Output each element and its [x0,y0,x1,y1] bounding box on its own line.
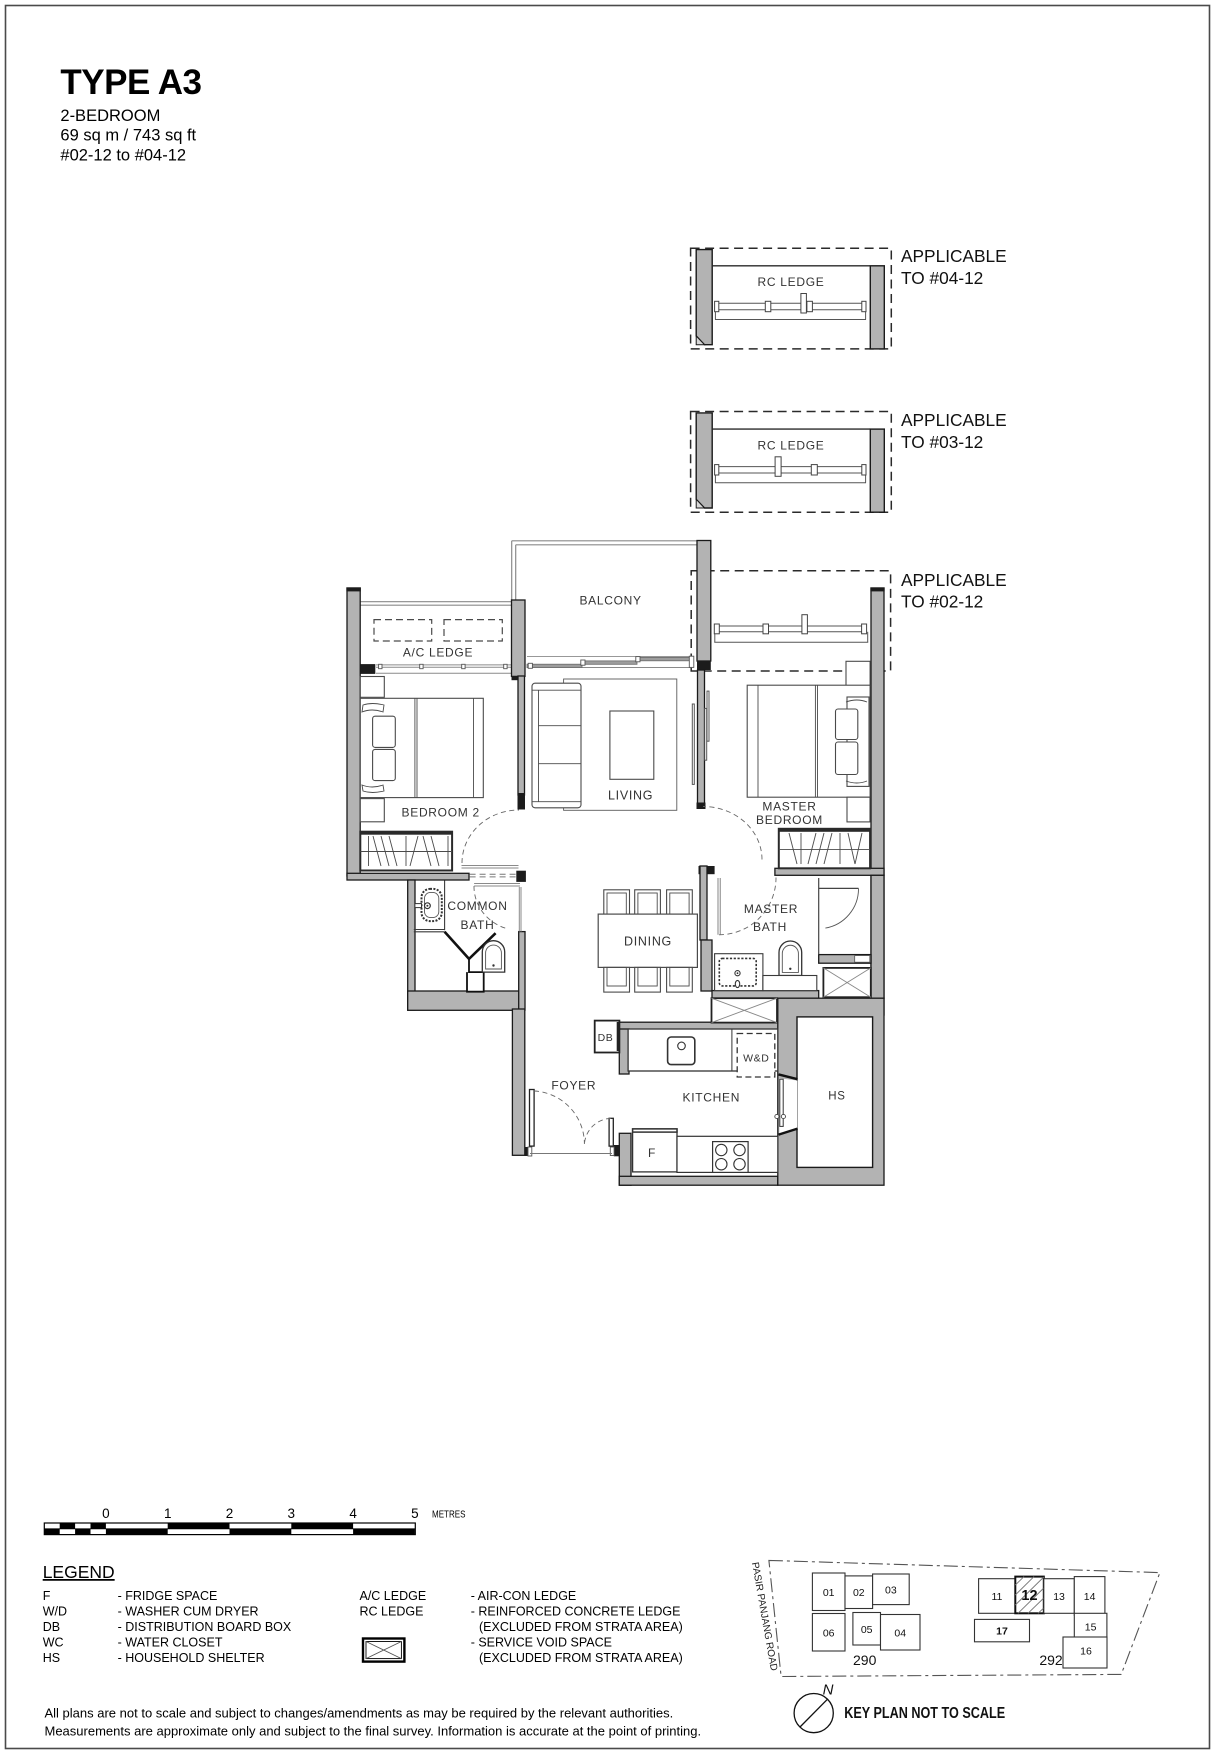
svg-text:APPLICABLE: APPLICABLE [901,570,1007,590]
svg-text:LIVING: LIVING [608,789,653,803]
svg-text:16: 16 [1080,1646,1092,1658]
svg-text:BEDROOM: BEDROOM [756,813,823,827]
svg-text:BEDROOM 2: BEDROOM 2 [402,806,480,820]
svg-text:Measurements are approximate o: Measurements are approximate only and su… [45,1724,702,1739]
svg-text:- DISTRIBUTION BOARD BOX: - DISTRIBUTION BOARD BOX [118,1620,292,1634]
svg-text:- SERVICE VOID SPACE: - SERVICE VOID SPACE [471,1636,612,1650]
svg-text:05: 05 [861,1624,873,1636]
svg-text:APPLICABLE: APPLICABLE [901,246,1007,266]
svg-text:DB: DB [43,1620,60,1634]
svg-text:A/C LEDGE: A/C LEDGE [403,646,473,660]
svg-text:- WATER CLOSET: - WATER CLOSET [118,1636,223,1650]
svg-text:All plans are not to scale and: All plans are not to scale and subject t… [45,1706,674,1721]
svg-text:11: 11 [991,1591,1002,1603]
svg-text:(EXCLUDED FROM STRATA AREA): (EXCLUDED FROM STRATA AREA) [479,1651,683,1665]
svg-text:DINING: DINING [624,935,672,949]
svg-text:4: 4 [349,1506,357,1521]
svg-text:#02-12 to #04-12: #02-12 to #04-12 [60,146,186,164]
svg-text:BALCONY: BALCONY [579,594,641,608]
svg-text:WC: WC [43,1636,64,1650]
svg-text:3: 3 [288,1506,296,1521]
svg-text:TO #03-12: TO #03-12 [901,432,983,452]
svg-text:RC LEDGE: RC LEDGE [758,275,825,289]
svg-text:TO #02-12: TO #02-12 [901,592,983,612]
svg-text:FOYER: FOYER [551,1079,596,1093]
svg-text:- WASHER CUM DRYER: - WASHER CUM DRYER [118,1605,259,1619]
svg-text:W&D: W&D [743,1053,769,1065]
svg-text:METRES: METRES [432,1510,466,1521]
svg-text:03: 03 [885,1584,897,1596]
svg-text:- REINFORCED CONCRETE LEDGE: - REINFORCED CONCRETE LEDGE [471,1605,681,1619]
svg-text:DB: DB [598,1032,614,1044]
svg-text:W/D: W/D [43,1605,67,1619]
svg-text:04: 04 [894,1627,906,1639]
svg-text:01: 01 [823,1587,835,1599]
svg-text:02: 02 [853,1587,865,1599]
svg-text:292: 292 [1039,1652,1063,1668]
svg-text:- HOUSEHOLD SHELTER: - HOUSEHOLD SHELTER [118,1651,265,1665]
svg-text:TO #04-12: TO #04-12 [901,268,983,288]
svg-text:F: F [648,1146,656,1160]
svg-text:1: 1 [164,1506,172,1521]
svg-text:KEY PLAN NOT TO SCALE: KEY PLAN NOT TO SCALE [844,1705,1005,1722]
svg-text:BATH: BATH [753,920,787,934]
svg-text:0: 0 [102,1506,110,1521]
svg-text:MASTER: MASTER [762,800,816,814]
svg-text:2-BEDROOM: 2-BEDROOM [60,107,160,125]
svg-text:RC LEDGE: RC LEDGE [758,438,825,452]
svg-text:17: 17 [996,1626,1008,1638]
svg-text:5: 5 [411,1506,419,1521]
svg-text:COMMON: COMMON [447,899,507,913]
svg-text:HS: HS [828,1091,845,1103]
svg-text:2: 2 [226,1506,234,1521]
svg-text:14: 14 [1084,1591,1096,1603]
svg-text:290: 290 [853,1652,877,1668]
svg-text:MASTER: MASTER [744,902,798,916]
svg-text:- AIR-CON LEDGE: - AIR-CON LEDGE [471,1589,577,1603]
svg-text:N: N [823,1682,834,1699]
svg-text:69 sq m / 743 sq ft: 69 sq m / 743 sq ft [60,127,196,145]
svg-text:15: 15 [1085,1622,1097,1634]
svg-text:(EXCLUDED FROM STRATA AREA): (EXCLUDED FROM STRATA AREA) [479,1620,683,1634]
svg-text:06: 06 [823,1627,835,1639]
svg-text:12: 12 [1021,1588,1037,1604]
svg-text:RC LEDGE: RC LEDGE [360,1605,424,1619]
svg-text:HS: HS [43,1651,60,1665]
svg-text:LEGEND: LEGEND [43,1562,115,1582]
svg-text:TYPE A3: TYPE A3 [60,63,201,102]
svg-text:13: 13 [1053,1591,1065,1603]
svg-text:APPLICABLE: APPLICABLE [901,410,1007,430]
svg-text:A/C LEDGE: A/C LEDGE [360,1589,427,1603]
svg-text:- FRIDGE SPACE: - FRIDGE SPACE [118,1589,218,1603]
svg-text:KITCHEN: KITCHEN [683,1091,741,1105]
svg-text:F: F [43,1589,51,1603]
svg-text:BATH: BATH [461,918,495,932]
